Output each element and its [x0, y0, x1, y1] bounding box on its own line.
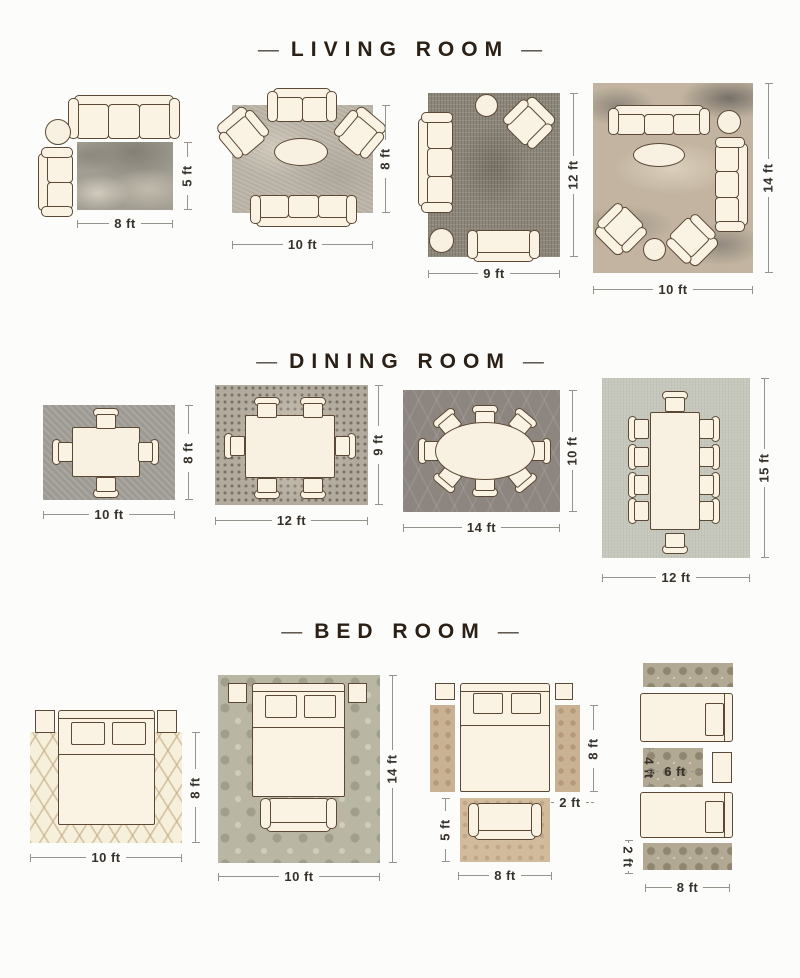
height-dimension: 14 ft	[385, 675, 399, 863]
sofa-cushions	[76, 104, 172, 139]
dining-chair	[254, 478, 280, 499]
chair-seat	[138, 442, 153, 462]
dining-chair	[628, 444, 649, 470]
sofa-cushion	[47, 182, 73, 210]
dimension-line	[764, 378, 765, 449]
height-dimension: 8 ft	[181, 405, 195, 500]
sofa-arm	[715, 137, 745, 148]
living-room-layout-3: 9 ft 12 ft	[405, 88, 595, 288]
runner-width-dimension: 2 ft	[621, 840, 635, 874]
width-dimension: 12 ft	[215, 513, 368, 527]
sofa-cushion	[475, 230, 532, 253]
dimension-line	[311, 520, 368, 521]
dimension-label: 8 ft	[672, 880, 704, 895]
sofa-cushion	[47, 155, 73, 183]
chair-seat	[230, 436, 245, 456]
dimension-line	[586, 802, 594, 803]
section-title-text: DINING ROOM	[289, 350, 511, 373]
dimension-line	[768, 197, 769, 273]
chair-seat	[634, 475, 649, 495]
width-dimension: 10 ft	[43, 507, 175, 521]
sofa-arm	[41, 147, 73, 158]
sofa-cushions	[427, 120, 453, 205]
dining-table-oval	[435, 422, 535, 480]
dining-chair	[699, 444, 720, 470]
bed-room-layout-4: 4 ft 6 ft 2 ft 8 ft	[620, 660, 795, 900]
bed	[460, 683, 550, 792]
chair-seat	[699, 419, 714, 439]
dimension-line	[645, 887, 672, 888]
pillow	[705, 703, 724, 736]
sofa-cushion	[275, 97, 303, 122]
sofa	[715, 137, 748, 232]
dimension-label: 8 ft	[378, 148, 393, 170]
dimension-line	[126, 857, 182, 858]
width-dimension: 10 ft	[593, 282, 753, 296]
sofa-arm	[41, 206, 73, 217]
dining-chair	[628, 472, 649, 498]
bench	[260, 798, 337, 832]
dining-room-layout-4: 12 ft 15 ft	[602, 376, 777, 586]
dining-chair	[699, 472, 720, 498]
dimension-line	[385, 105, 386, 140]
chair-seat	[96, 477, 116, 492]
dining-room-layout-3: 14 ft 10 ft	[403, 388, 583, 533]
sofa-cushion	[673, 114, 702, 135]
pillow	[705, 801, 724, 833]
sofa-cushion	[644, 114, 673, 135]
pillow	[304, 695, 336, 718]
dimension-label: 8 ft	[489, 868, 521, 883]
section-title-text: LIVING ROOM	[291, 38, 509, 61]
loveseat	[467, 230, 540, 262]
dining-chair	[300, 478, 326, 499]
dimension-line	[319, 876, 380, 877]
nightstand	[348, 683, 367, 703]
sofa-cushions	[258, 195, 349, 218]
chair-seat	[96, 414, 116, 429]
chair-seat	[303, 403, 323, 418]
loveseat	[267, 88, 337, 122]
chair-seat	[257, 478, 277, 493]
dimension-label: 10 ft	[283, 237, 322, 252]
bed-room-layout-3: 8 ft 2 ft 5 ft 8 ft	[428, 678, 603, 886]
coffee-table-oval	[633, 143, 685, 167]
bed	[252, 683, 345, 797]
dimension-line	[187, 195, 188, 210]
sofa	[418, 112, 453, 213]
title-dash: —	[523, 350, 544, 373]
dimension-line	[445, 798, 446, 811]
height-dimension: 8 ft	[378, 105, 392, 213]
width-dimension: 10 ft	[218, 869, 380, 883]
dimension-line	[696, 577, 750, 578]
nightstand	[157, 710, 177, 733]
dimension-label: 10 ft	[653, 282, 692, 297]
dimension-label: 8 ft	[586, 738, 601, 760]
bench	[468, 803, 542, 840]
dimension-line	[573, 194, 574, 257]
runner-rug	[643, 663, 733, 687]
title-dash: —	[281, 620, 302, 643]
dimension-line	[593, 705, 594, 730]
dimension-line	[403, 527, 462, 528]
living-room-layout-1: 8 ft 5 ft	[30, 88, 202, 236]
width-dimension: 10 ft	[30, 850, 182, 864]
runner-width-dimension: 2 ft	[546, 795, 594, 809]
dimension-label: 5 ft	[438, 819, 453, 841]
sofa-cushion	[616, 114, 645, 135]
width-dimension: 12 ft	[602, 570, 750, 584]
chair-seat	[699, 475, 714, 495]
sofa-cushion	[288, 195, 319, 218]
runner-rug	[555, 705, 580, 792]
chair-seat	[699, 501, 714, 521]
dining-room-layout-1: 10 ft 8 ft	[43, 403, 198, 523]
pillow	[265, 695, 297, 718]
sofa-arm	[326, 91, 337, 122]
width-dimension: 8 ft	[458, 868, 552, 882]
dimension-line	[521, 875, 552, 876]
dimension-label: 14 ft	[385, 754, 400, 783]
pillow	[71, 722, 105, 745]
headboard	[461, 684, 549, 692]
dimension-line	[378, 385, 379, 426]
living-room-layout-4: 10 ft 14 ft	[593, 80, 793, 300]
dimension-line	[218, 876, 279, 877]
chaise-lounge	[38, 147, 73, 217]
dining-chair	[628, 416, 649, 442]
dimension-label: 10 ft	[89, 507, 128, 522]
sofa-cushion	[427, 148, 453, 177]
dining-chair	[254, 397, 280, 418]
dimension-line	[628, 871, 629, 874]
side-table-round	[45, 119, 71, 145]
dimension-line	[385, 178, 386, 213]
sofa-cushion	[108, 104, 141, 139]
bed-room-layout-1: 10 ft 8 ft	[28, 698, 208, 868]
sofa-arm	[326, 798, 337, 829]
nightstand	[35, 710, 55, 733]
dimension-line	[648, 771, 659, 772]
dimension-line	[572, 470, 573, 512]
dimension-line	[215, 520, 272, 521]
sofa-cushions	[268, 798, 329, 823]
dining-chair	[93, 477, 119, 498]
bed-body	[58, 754, 155, 825]
dining-chair	[662, 533, 688, 554]
sofa-arm	[468, 803, 479, 837]
dimension-label: 9 ft	[371, 434, 386, 456]
width-dimension: 14 ft	[403, 520, 560, 534]
sofa-arm	[531, 803, 542, 837]
dimension-line	[649, 782, 650, 788]
dimension-line	[593, 289, 653, 290]
sofa-cushions	[475, 230, 532, 253]
section-title-text: BED ROOM	[314, 620, 486, 643]
headboard	[724, 793, 732, 837]
height-dimension: 10 ft	[565, 390, 579, 512]
sofa-cushions	[476, 803, 534, 831]
runner-rug	[430, 705, 455, 792]
dimension-line	[693, 289, 753, 290]
chair-seat	[58, 442, 73, 462]
sofa-cushion	[715, 145, 739, 172]
dimension-label: 8 ft	[188, 777, 203, 799]
sofa-cushions	[616, 114, 702, 135]
runner-rug	[643, 843, 732, 870]
dimension-line	[392, 675, 393, 750]
sofa-arm	[260, 798, 271, 829]
section-title-living-room: —LIVING ROOM—	[0, 38, 800, 62]
chair-seat	[634, 447, 649, 467]
dimension-line	[195, 807, 196, 844]
dining-table	[72, 427, 140, 477]
dining-chair	[699, 416, 720, 442]
sofa-cushions	[715, 145, 739, 224]
dimension-label: 10 ft	[86, 850, 125, 865]
nightstand	[555, 683, 573, 700]
dimension-label: 10 ft	[279, 869, 318, 884]
height-dimension: 12 ft	[566, 93, 580, 257]
title-dash: —	[521, 38, 542, 61]
dimension-line	[77, 223, 109, 224]
headboard	[59, 711, 154, 719]
dimension-label: 5 ft	[180, 165, 195, 187]
sofa-arm	[715, 221, 745, 232]
sofa-arm	[608, 108, 619, 135]
dimension-label: 10 ft	[565, 436, 580, 465]
dimension-label: 15 ft	[757, 453, 772, 482]
nightstand	[435, 683, 455, 700]
area-rug	[77, 142, 173, 210]
sofa-cushion	[715, 197, 739, 224]
mid-rug-width-dimension: 6 ft	[648, 764, 702, 778]
dimension-line	[428, 273, 478, 274]
dimension-line	[187, 142, 188, 157]
dimension-label: 12 ft	[566, 160, 581, 189]
bed-body	[460, 725, 550, 792]
chair-seat	[665, 397, 685, 412]
chair-seat	[257, 403, 277, 418]
sofa-cushion	[302, 97, 330, 122]
sofa-arm	[529, 230, 540, 259]
runner-length-dimension: 8 ft	[586, 705, 600, 792]
coffee-table-oval	[274, 138, 328, 166]
dimension-line	[141, 223, 173, 224]
sofa-arm	[169, 98, 180, 139]
sofa-cushion	[427, 120, 453, 149]
sofa-arm	[467, 230, 478, 259]
rug-size-guide-infographic: —LIVING ROOM— 8 ft 5 ft	[0, 0, 800, 978]
dimension-line	[703, 887, 730, 888]
dimension-line	[768, 83, 769, 159]
sofa-cushion	[715, 171, 739, 198]
pillow	[511, 693, 541, 714]
dining-chair	[699, 498, 720, 524]
dimension-line	[392, 788, 393, 863]
sofa-cushion	[476, 803, 534, 831]
chair-seat	[634, 419, 649, 439]
sofa-arm	[421, 202, 453, 213]
sofa-arm	[250, 195, 261, 224]
width-dimension: 8 ft	[77, 216, 173, 230]
nightstand	[712, 752, 732, 783]
chair-seat	[303, 478, 323, 493]
dimension-label: 6 ft	[659, 764, 691, 779]
dimension-line	[501, 527, 560, 528]
section-title-dining-room: —DINING ROOM—	[0, 350, 800, 374]
dining-chair	[93, 408, 119, 429]
sofa	[608, 105, 710, 135]
dimension-line	[378, 464, 379, 505]
bed-body	[252, 727, 345, 797]
title-dash: —	[256, 350, 277, 373]
sofa-arm	[346, 195, 357, 224]
sofa-arm	[421, 112, 453, 123]
dining-chair	[300, 397, 326, 418]
height-dimension: 15 ft	[757, 378, 771, 558]
nightstand	[228, 683, 247, 703]
dining-chair	[335, 433, 356, 459]
dimension-line	[445, 849, 446, 862]
dining-chair	[662, 391, 688, 412]
dimension-line	[188, 472, 189, 501]
dimension-line	[691, 771, 702, 772]
dimension-label: 2 ft	[554, 795, 586, 810]
sofa	[250, 195, 357, 227]
dimension-line	[764, 487, 765, 558]
dimension-line	[573, 93, 574, 156]
title-dash: —	[258, 38, 279, 61]
dining-chair	[628, 498, 649, 524]
dimension-label: 8 ft	[181, 442, 196, 464]
sofa-arm	[699, 108, 710, 135]
dimension-line	[129, 514, 175, 515]
pillow	[473, 693, 503, 714]
bed	[58, 710, 155, 825]
bed-room-layout-2: 10 ft 14 ft	[218, 673, 403, 885]
dimension-label: 12 ft	[272, 513, 311, 528]
dimension-label: 9 ft	[478, 266, 510, 281]
dimension-line	[510, 273, 560, 274]
chair-seat	[634, 501, 649, 521]
sofa-cushion	[258, 195, 289, 218]
sofa-cushions	[47, 155, 73, 209]
height-dimension: 14 ft	[761, 83, 775, 273]
chair-seat	[699, 447, 714, 467]
dining-chair	[224, 433, 245, 459]
width-dimension: 8 ft	[645, 880, 730, 894]
headboard	[724, 694, 732, 741]
living-room-layout-2: 10 ft 8 ft	[215, 86, 400, 251]
section-title-bed-room: —BED ROOM—	[0, 620, 800, 644]
dimension-line	[43, 514, 89, 515]
side-table-round	[429, 228, 454, 253]
height-dimension: 8 ft	[188, 732, 202, 843]
title-dash: —	[498, 620, 519, 643]
sofa-cushions	[275, 97, 329, 122]
dimension-label: 14 ft	[462, 520, 501, 535]
dining-room-layout-2: 12 ft 9 ft	[215, 383, 387, 528]
sofa-cushion	[139, 104, 172, 139]
height-dimension: 9 ft	[371, 385, 385, 505]
dimension-line	[30, 857, 86, 858]
sofa-arm	[267, 91, 278, 122]
sofa	[68, 95, 180, 139]
width-dimension: 10 ft	[232, 237, 373, 251]
twin-bed	[640, 792, 733, 838]
dimension-label: 12 ft	[656, 570, 695, 585]
dimension-line	[572, 390, 573, 432]
chair-seat	[665, 533, 685, 548]
dimension-label: 14 ft	[761, 163, 776, 192]
width-dimension: 9 ft	[428, 266, 560, 280]
pillow	[112, 722, 146, 745]
dimension-line	[232, 244, 283, 245]
side-table-round	[717, 110, 741, 134]
sofa-cushion	[427, 176, 453, 205]
dimension-line	[593, 768, 594, 793]
dimension-line	[458, 875, 489, 876]
dining-chair	[52, 439, 73, 465]
sofa-cushion	[318, 195, 349, 218]
dimension-line	[195, 732, 196, 769]
dimension-line	[188, 405, 189, 434]
dimension-label: 8 ft	[109, 216, 141, 231]
twin-bed	[640, 693, 733, 742]
sofa-cushion	[268, 798, 329, 823]
chair-seat	[335, 436, 350, 456]
height-dimension: 5 ft	[180, 142, 194, 210]
dimension-label: 2 ft	[621, 846, 636, 868]
dining-table	[245, 415, 335, 478]
dining-table	[650, 412, 700, 530]
headboard	[253, 684, 344, 692]
side-table-round	[475, 94, 498, 117]
front-rug-height-dimension: 5 ft	[438, 798, 452, 862]
sofa-cushion	[76, 104, 109, 139]
dimension-line	[602, 577, 656, 578]
dimension-line	[322, 244, 373, 245]
dining-chair	[138, 439, 159, 465]
